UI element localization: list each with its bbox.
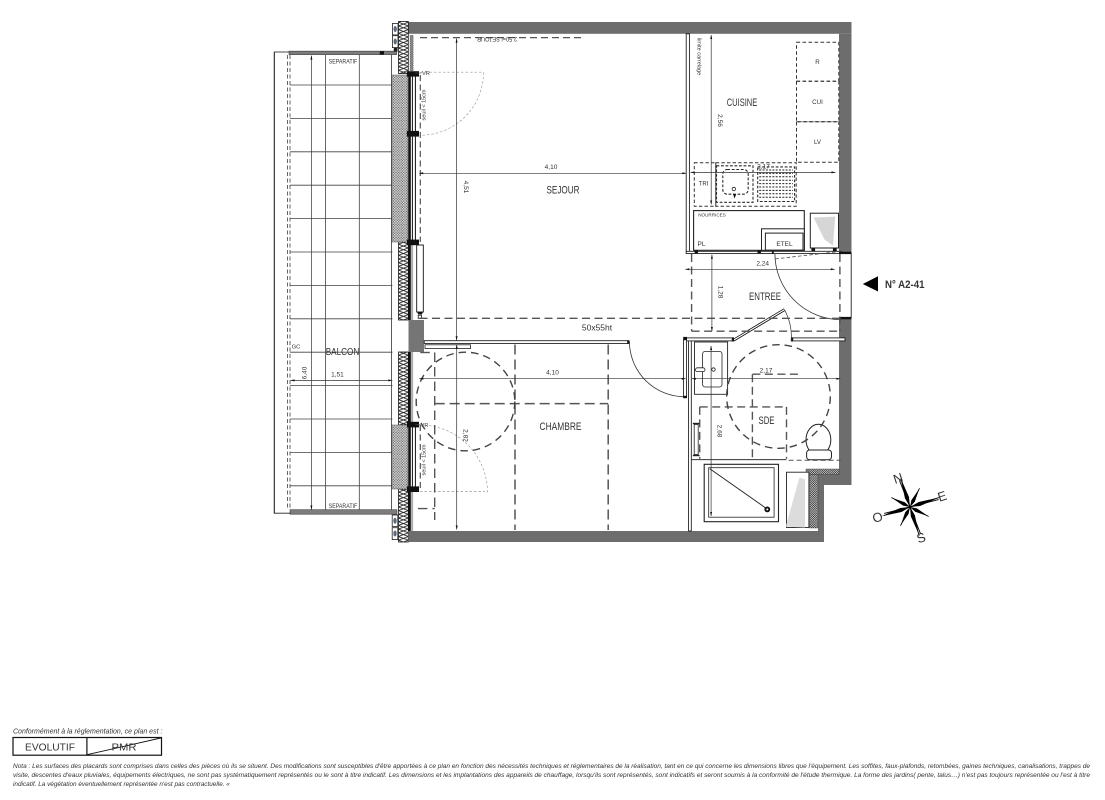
svg-text:indicatif. La végétation évent: indicatif. La végétation éventuellement …: [13, 781, 230, 788]
svg-text:2.50=l SEJOUR: 2.50=l SEJOUR: [477, 35, 517, 42]
svg-text:ENTREE: ENTREE: [749, 291, 781, 303]
svg-text:LV: LV: [814, 139, 822, 146]
svg-text:EVOLUTIF: EVOLUTIF: [25, 741, 75, 753]
svg-text:E: E: [936, 488, 949, 505]
svg-text:O: O: [870, 509, 884, 526]
svg-text:2,17: 2,17: [760, 368, 773, 375]
svg-text:GC: GC: [292, 345, 301, 351]
svg-text:S: S: [915, 529, 928, 546]
svg-text:2,17: 2,17: [757, 164, 770, 171]
svg-text:SEPARATIF: SEPARATIF: [329, 503, 358, 510]
svg-text:1,51: 1,51: [331, 372, 344, 379]
svg-text:PL: PL: [698, 241, 706, 248]
svg-text:N: N: [891, 470, 905, 487]
svg-text:CHAMBRE: CHAMBRE: [540, 421, 582, 433]
svg-text:2,82: 2,82: [461, 429, 468, 442]
svg-text:50x55ht: 50x55ht: [582, 323, 613, 333]
svg-text:R: R: [815, 59, 820, 66]
svg-text:2,56: 2,56: [716, 114, 723, 127]
svg-text:Conformément à la réglementati: Conformément à la réglementation, ce pla…: [13, 729, 162, 736]
svg-text:ETEL: ETEL: [776, 241, 793, 248]
svg-text:seuil < 15cm: seuil < 15cm: [422, 444, 428, 475]
svg-text:2,68: 2,68: [716, 425, 723, 438]
svg-text:SEJOUR: SEJOUR: [547, 185, 580, 197]
svg-text:1,28: 1,28: [716, 286, 723, 299]
svg-text:6,40: 6,40: [302, 366, 309, 379]
svg-text:PMR: PMR: [112, 741, 137, 753]
svg-text:CUISINE: CUISINE: [727, 97, 758, 109]
svg-text:visite, descentes d'eaux pluvi: visite, descentes d'eaux pluviales, équi…: [13, 772, 1090, 779]
svg-text:TRI: TRI: [699, 182, 709, 188]
svg-text:VR: VR: [422, 71, 430, 77]
svg-text:Nota : Les surfaces des placar: Nota : Les surfaces des placards sont co…: [13, 763, 1090, 770]
svg-text:SDE: SDE: [759, 415, 775, 427]
svg-text:NOURRICES: NOURRICES: [698, 213, 726, 218]
svg-text:N° A2-41: N° A2-41: [885, 279, 925, 291]
svg-text:4,10: 4,10: [545, 164, 558, 171]
svg-text:CUI: CUI: [812, 99, 823, 106]
svg-text:4,51: 4,51: [462, 181, 469, 194]
svg-text:2,24: 2,24: [756, 261, 769, 268]
svg-text:BALCON: BALCON: [326, 347, 360, 358]
svg-text:seuil < 15cm: seuil < 15cm: [422, 89, 428, 120]
svg-text:4,10: 4,10: [546, 370, 559, 377]
svg-text:limite carrelage: limite carrelage: [696, 38, 702, 75]
svg-text:SEPARATIF: SEPARATIF: [329, 59, 358, 66]
